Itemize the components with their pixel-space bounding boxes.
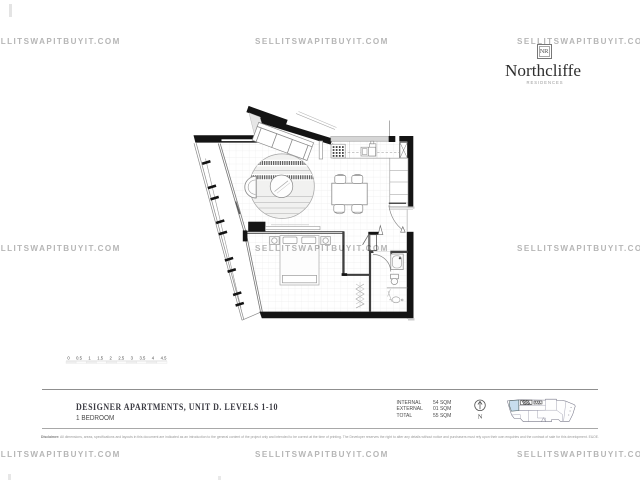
svg-text:1.5: 1.5: [97, 356, 103, 361]
svg-text:2.5: 2.5: [118, 356, 124, 361]
svg-text:4.5: 4.5: [161, 356, 167, 361]
svg-text:0: 0: [67, 356, 70, 361]
svg-text:3: 3: [131, 356, 134, 361]
svg-text:4: 4: [152, 356, 155, 361]
svg-text:0.5: 0.5: [76, 356, 82, 361]
svg-text:1: 1: [88, 356, 91, 361]
svg-text:3.5: 3.5: [139, 356, 145, 361]
svg-text:2: 2: [110, 356, 113, 361]
svg-text:N: N: [478, 414, 483, 421]
